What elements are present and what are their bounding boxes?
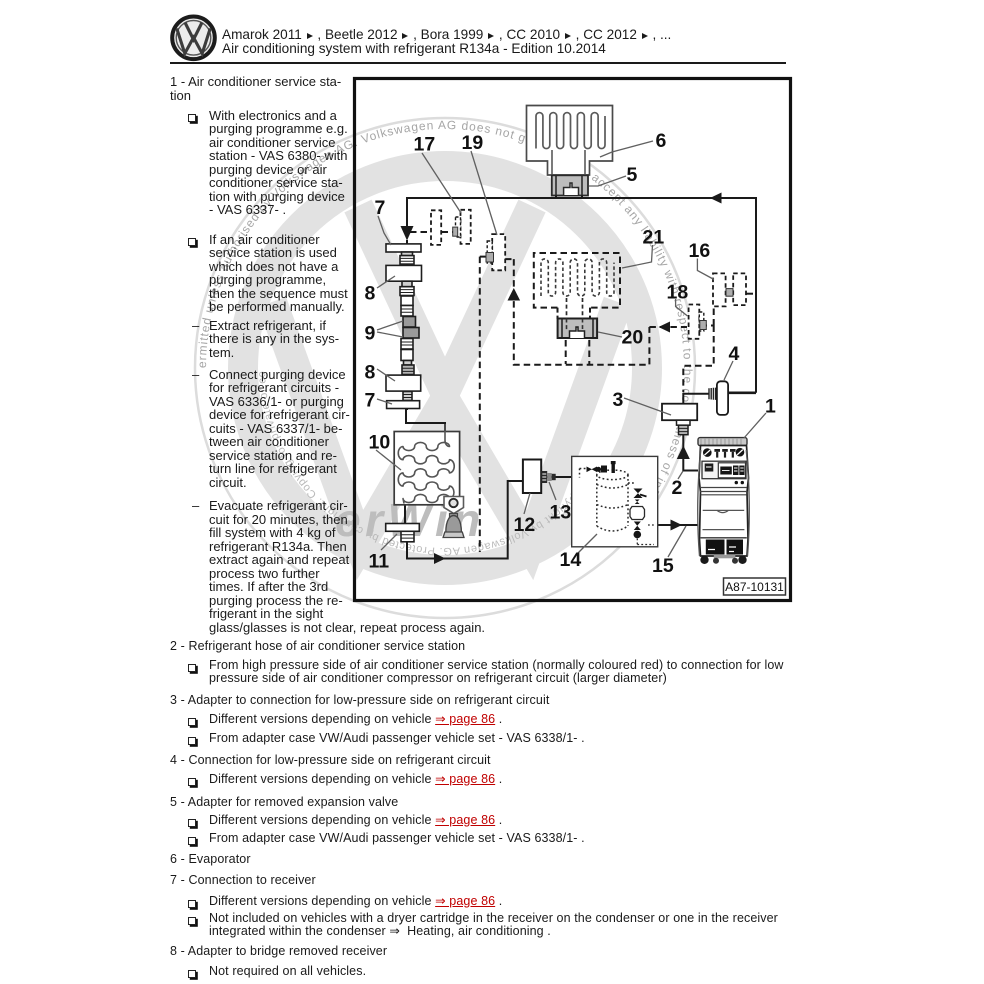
svg-text:15: 15	[652, 555, 674, 577]
svg-text:19: 19	[462, 132, 484, 154]
svg-text:3: 3	[613, 389, 624, 411]
svg-text:5: 5	[627, 164, 638, 186]
svg-text:17: 17	[414, 134, 436, 156]
svg-text:10: 10	[369, 432, 391, 454]
svg-text:6: 6	[656, 130, 667, 152]
svg-text:8: 8	[365, 362, 376, 384]
svg-text:A87-10131: A87-10131	[725, 580, 784, 594]
svg-text:1: 1	[765, 396, 776, 418]
svg-text:12: 12	[514, 514, 536, 536]
svg-text:18: 18	[667, 282, 689, 304]
svg-text:14: 14	[560, 549, 582, 571]
svg-text:7: 7	[375, 197, 386, 219]
svg-text:8: 8	[365, 283, 376, 305]
svg-text:21: 21	[643, 227, 665, 249]
svg-text:13: 13	[550, 502, 572, 524]
svg-text:9: 9	[365, 323, 376, 345]
svg-text:16: 16	[689, 240, 711, 262]
svg-text:7: 7	[365, 390, 376, 412]
svg-text:4: 4	[729, 343, 740, 365]
svg-text:2: 2	[672, 477, 683, 499]
svg-text:20: 20	[622, 327, 644, 349]
